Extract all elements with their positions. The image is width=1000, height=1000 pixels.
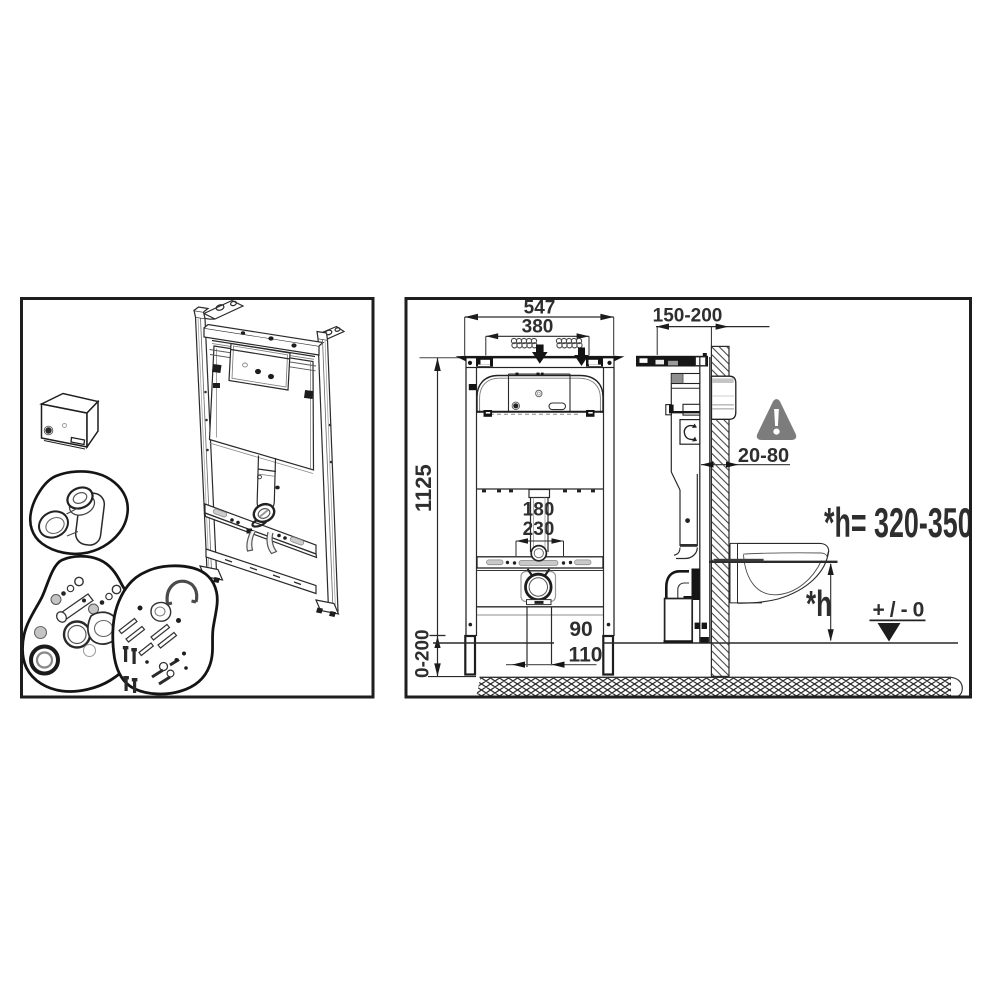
- svg-text:180: 180: [523, 500, 555, 521]
- svg-text:230: 230: [523, 519, 555, 540]
- svg-text:1125: 1125: [411, 464, 436, 512]
- svg-text:547: 547: [524, 298, 556, 319]
- svg-text:0-200: 0-200: [413, 629, 434, 678]
- svg-text:*h= 320-350: *h= 320-350: [824, 500, 973, 546]
- svg-text:380: 380: [522, 317, 554, 338]
- svg-text:*h: *h: [806, 584, 832, 624]
- svg-text:20-80: 20-80: [738, 445, 789, 467]
- svg-text:+/-0: +/-0: [873, 599, 930, 622]
- svg-text:90: 90: [569, 618, 592, 641]
- svg-text:150-200: 150-200: [653, 306, 723, 327]
- svg-text:110: 110: [569, 644, 603, 667]
